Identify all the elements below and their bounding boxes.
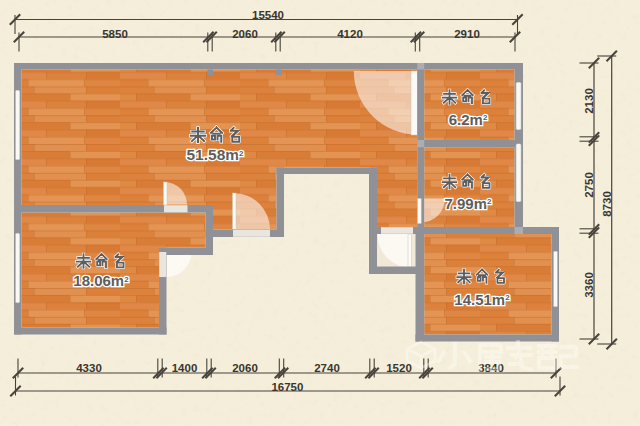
svg-text:16750: 16750 — [271, 381, 303, 393]
svg-text:8730: 8730 — [601, 191, 613, 217]
svg-text:3360: 3360 — [583, 272, 595, 298]
svg-text:51.58m2: 51.58m2 — [186, 146, 244, 163]
svg-text:2740: 2740 — [314, 362, 340, 374]
svg-text:4330: 4330 — [76, 362, 102, 374]
svg-text:5850: 5850 — [102, 28, 128, 40]
svg-text:7.99m2: 7.99m2 — [445, 195, 493, 212]
svg-text:2060: 2060 — [232, 28, 258, 40]
svg-text:15540: 15540 — [252, 9, 284, 21]
svg-text:6.2m2: 6.2m2 — [449, 111, 488, 128]
svg-text:18.06m2: 18.06m2 — [73, 272, 129, 289]
svg-text:2910: 2910 — [454, 28, 480, 40]
svg-text:4120: 4120 — [337, 28, 363, 40]
svg-text:2130: 2130 — [583, 88, 595, 114]
svg-text:1520: 1520 — [386, 362, 412, 374]
svg-text:14.51m2: 14.51m2 — [454, 291, 510, 308]
svg-text:2750: 2750 — [583, 172, 595, 198]
svg-text:2060: 2060 — [232, 362, 258, 374]
svg-text:1400: 1400 — [172, 362, 198, 374]
